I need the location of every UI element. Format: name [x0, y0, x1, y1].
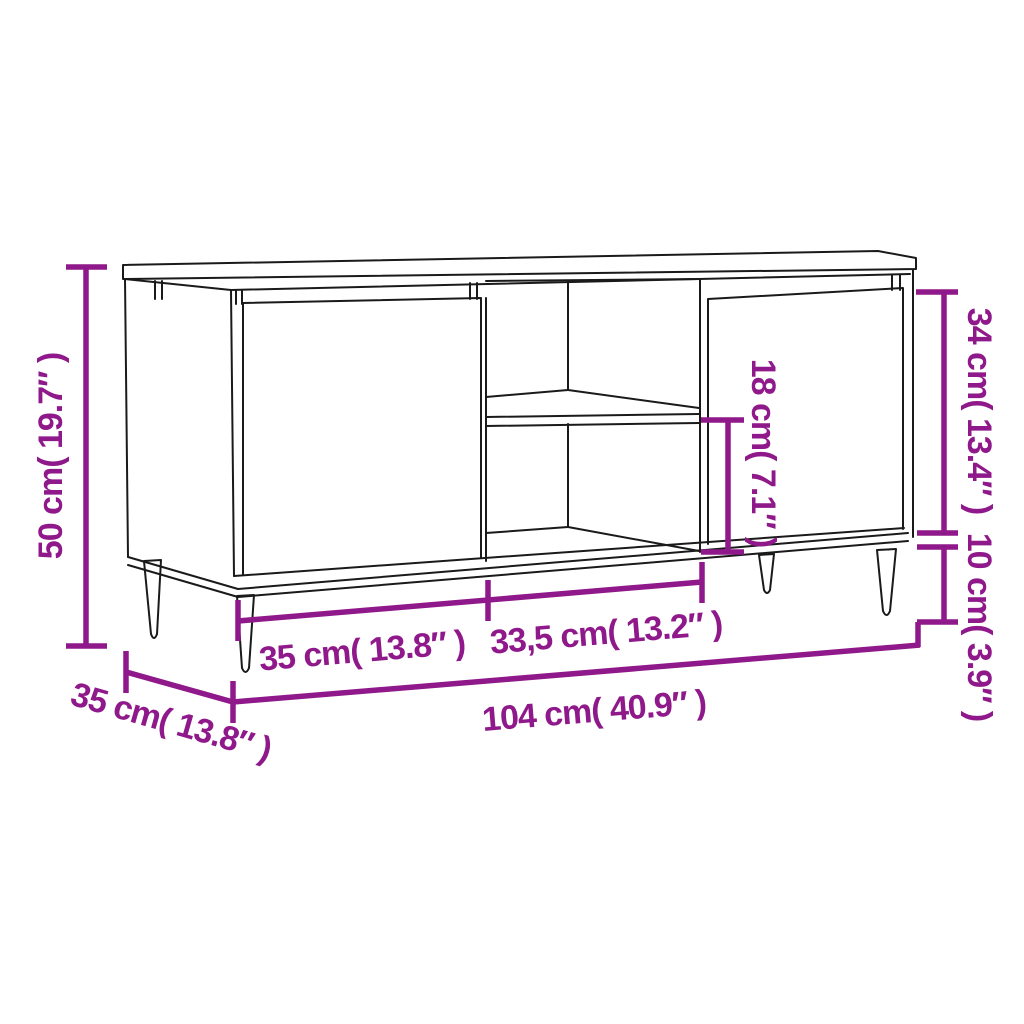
right-door — [708, 288, 903, 544]
left-side-outer-edge — [125, 279, 128, 557]
diagram-canvas: 50 cm( 19.7″ ) 35 cm( 13.8″ ) 35 cm( 13.… — [0, 0, 1024, 1024]
furniture-dimension-diagram: 50 cm( 19.7″ ) 35 cm( 13.8″ ) 35 cm( 13.… — [0, 0, 1024, 1024]
label-depth: 35 cm( 13.8″ ) — [67, 675, 276, 768]
label-shelf-opening-height: 18 cm( 7.1″ ) — [744, 359, 782, 548]
left-door — [243, 298, 481, 575]
connector-fitting-left-door — [236, 290, 242, 304]
shelf-front-bottom-edge — [486, 423, 699, 426]
label-leg-height: 10 cm( 3.9″ ) — [960, 533, 998, 722]
shelf-top-back-right — [568, 390, 699, 408]
top-panel — [123, 251, 916, 279]
connector-fitting-middle — [470, 283, 477, 299]
cabinet-line-art — [123, 251, 916, 672]
plinth-front-top — [238, 533, 908, 589]
left-side-front-edge — [231, 290, 234, 576]
shelf-front-top-edge — [486, 414, 699, 417]
shelf-top-back-left — [486, 390, 568, 397]
left-side-top-edge — [125, 279, 231, 290]
leg-back-right — [759, 554, 774, 593]
label-door-height: 34 cm( 13.4″ ) — [960, 308, 998, 514]
leg-front-right — [877, 549, 896, 615]
label-overall-width: 104 cm( 40.9″ ) — [481, 683, 708, 739]
label-middle-section-width: 33,5 cm( 13.2″ ) — [488, 604, 723, 661]
floor-back-left — [486, 527, 568, 533]
label-overall-height: 50 cm( 19.7″ ) — [32, 353, 70, 559]
label-left-door-width: 35 cm( 13.8″ ) — [258, 623, 467, 678]
